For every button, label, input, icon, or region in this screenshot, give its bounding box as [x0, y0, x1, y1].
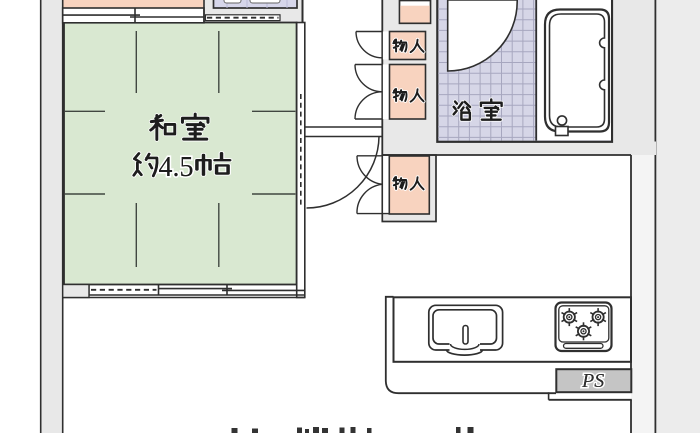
svg-text:PS: PS	[581, 370, 604, 392]
svg-text:4.5: 4.5	[159, 152, 194, 183]
